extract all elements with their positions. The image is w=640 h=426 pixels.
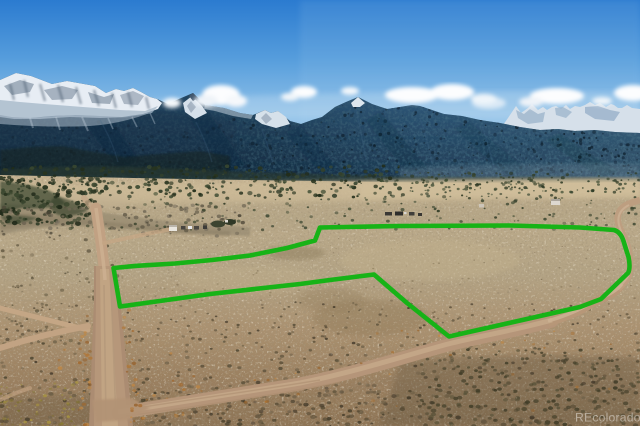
svg-text:REcolorado: REcolorado [575, 411, 640, 425]
